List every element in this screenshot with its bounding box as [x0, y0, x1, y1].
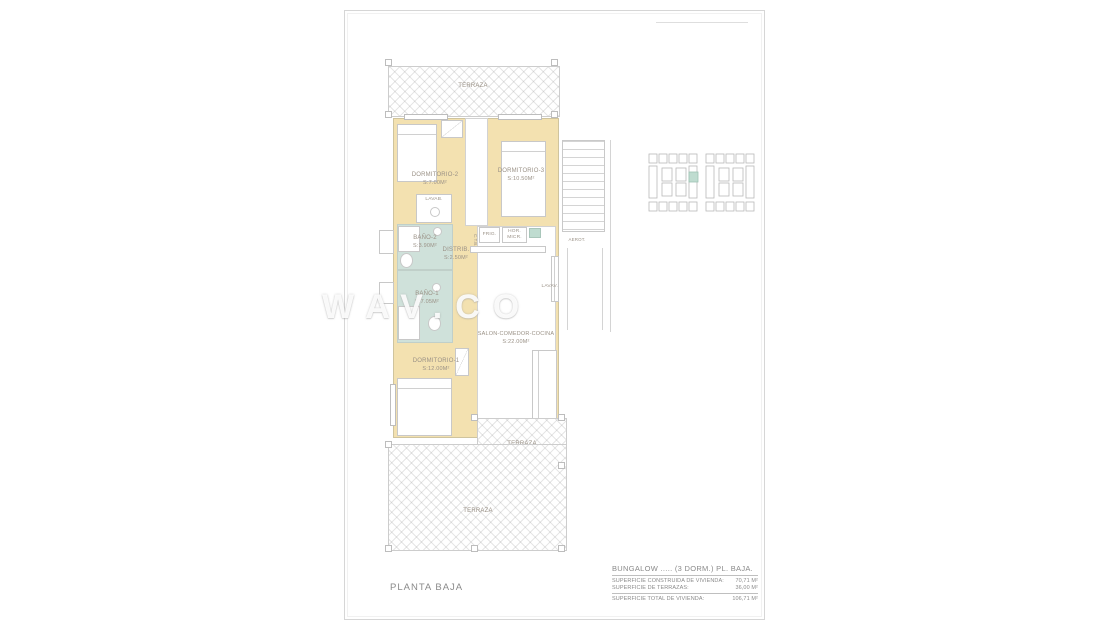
- terrace-top-label: TERRAZA: [438, 83, 508, 91]
- toilet-bathroom2: [400, 253, 413, 268]
- living-room-label: SALON-COMEDOR-COCINAS:22.00M²: [474, 331, 558, 346]
- pillar: [558, 414, 565, 421]
- plan-title: PLANTA BAJA: [390, 582, 463, 593]
- title-block-rule: [612, 593, 758, 594]
- title-block-rule: [612, 575, 758, 576]
- terrace-big-label: TERRAZA: [443, 508, 513, 516]
- dishwasher-unit: [551, 256, 559, 302]
- watermark: WAV.CO: [322, 288, 532, 327]
- surface-value: 70,71 M²: [735, 578, 758, 585]
- title-block-heading: BUNGALOW ..... (3 DORM.) PL. BAJA.: [612, 563, 758, 574]
- kitchen-counter: [470, 246, 546, 253]
- bedroom3-label: DORMITORIO-3S:10.50M²: [486, 168, 556, 183]
- exterior-unit-1: [379, 230, 394, 254]
- terrace-top: [388, 66, 560, 117]
- bedroom1-label: DORMITORIO-1S:12.00M²: [402, 358, 470, 373]
- surface-label: SUPERFICIE DE TERRAZAS:: [612, 585, 689, 592]
- kitchen-sink: [529, 228, 541, 238]
- pillar: [385, 59, 392, 66]
- surface-row: SUPERFICIE CONSTRUIDA DE VIVIENDA: 70,71…: [612, 578, 758, 585]
- terrace-big: [388, 444, 567, 551]
- exterior-stairs: [562, 140, 605, 232]
- surface-row-total: SUPERFICIE TOTAL DE VIVIENDA: 106,71 M²: [612, 596, 758, 603]
- fridge-label: FRIG.: [479, 232, 500, 238]
- hallway-label: DISTRIB.S:2.50M²: [432, 247, 480, 262]
- surface-row: SUPERFICIE DE TERRAZAS: 36,00 M²: [612, 585, 758, 592]
- pillar: [471, 414, 478, 421]
- sofa: [532, 350, 557, 422]
- pillar: [558, 545, 565, 552]
- pillar: [385, 545, 392, 552]
- pillar: [551, 59, 558, 66]
- title-block: BUNGALOW ..... (3 DORM.) PL. BAJA. SUPER…: [612, 563, 758, 603]
- side-passage: [567, 248, 603, 330]
- microwave-label: MICR.: [502, 235, 527, 241]
- bedroom2-label: DORMITORIO-2S:7.00M²: [400, 172, 470, 187]
- pillar: [471, 545, 478, 552]
- plan-canvas: TERRAZA LAVAB. C.T.B. FRIG. HOR. MICR. L…: [0, 0, 1110, 626]
- surface-label: SUPERFICIE CONSTRUIDA DE VIVIENDA:: [612, 578, 724, 585]
- washbasin-bowl: [430, 207, 440, 217]
- bed-bedroom1: [397, 378, 452, 436]
- pillar: [558, 462, 565, 469]
- aerothermal-label: AEROT.: [560, 237, 594, 243]
- stair-railing: [610, 140, 611, 332]
- window-bedroom1: [390, 384, 396, 426]
- surface-label: SUPERFICIE TOTAL DE VIVIENDA:: [612, 596, 704, 603]
- dishwasher-label: LAVAV.: [528, 284, 558, 290]
- letterhead-rule: [656, 22, 748, 23]
- window-bedroom3: [498, 114, 542, 120]
- pillar: [385, 441, 392, 448]
- key-plan-highlighted-unit: [689, 172, 698, 182]
- wardrobe-bedroom2: [441, 120, 463, 138]
- surface-value: 106,71 M²: [732, 596, 758, 603]
- pillar: [551, 111, 558, 118]
- surface-value: 36,00 M²: [735, 585, 758, 592]
- site-key-plan: [648, 152, 756, 214]
- pillar: [385, 111, 392, 118]
- washbasin-label: LAVAB.: [416, 197, 452, 203]
